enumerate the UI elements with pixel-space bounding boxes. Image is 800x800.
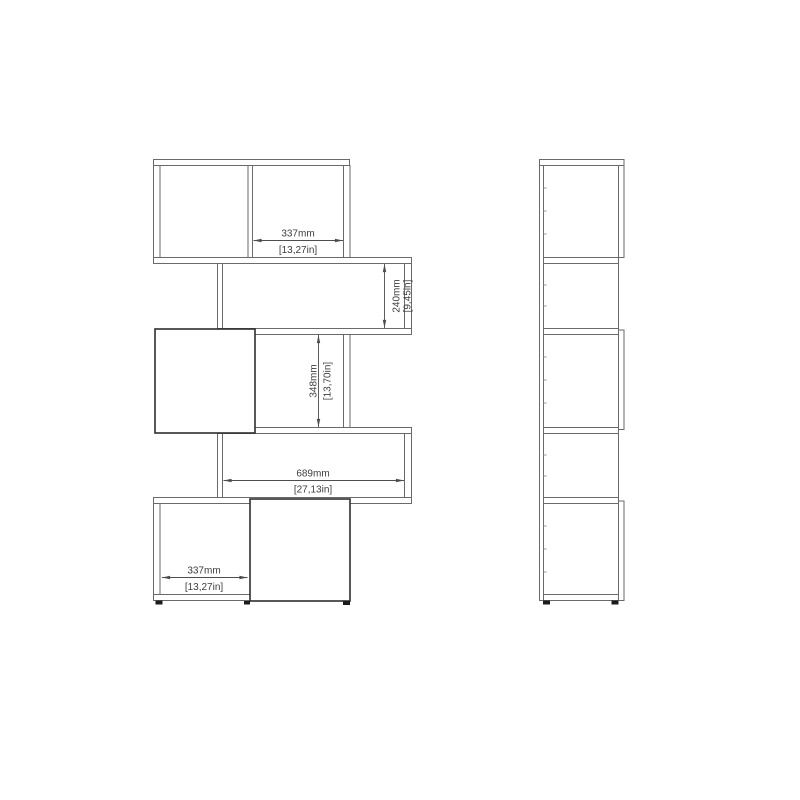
front-row4-right-wall [405,434,412,498]
dimension-label-inches: [9,45in] [403,279,414,312]
front-row4-pillar [218,434,223,498]
side-view [540,160,625,605]
side-top-panel [540,160,625,166]
front-row5-left-wall [154,504,161,595]
side-front-strip-row5 [619,501,625,601]
side-shelf-d [544,498,619,504]
front-row5-door-panel [250,499,350,601]
front-row3-door-panel [155,329,255,433]
front-shelf-a [154,258,412,264]
side-front-strip-row1 [619,166,625,258]
front-top-panel [154,160,350,166]
side-shelf-a [544,258,619,264]
front-foot-middle [244,601,250,605]
side-shelf-c [544,428,619,434]
front-row2-pillar [218,264,223,329]
dimension-shelf3-height: 348mm [13,70in] [309,335,334,427]
dimension-label-mm: 240mm [392,279,403,312]
dimension-label-inches: [27,13in] [294,485,333,496]
side-shelf-b [544,329,619,335]
dimension-label-inches: [13,70in] [323,362,334,401]
side-foot-back [543,601,550,605]
side-foot-front [612,601,619,605]
front-foot-right [343,601,350,605]
dimension-top-shelf-width: 337mm [13,27in] [254,229,344,257]
front-row1-left-wall [154,166,161,258]
dimension-shelf2-height: 240mm [9,45in] [385,264,414,328]
drawing-sheet: 337mm [13,27in] 240mm [9,45in] 348mm [13… [0,0,800,800]
dimension-label-inches: [13,27in] [279,245,318,256]
side-back-wall [540,166,544,601]
dimension-label-mm: 337mm [187,566,220,577]
front-row3-right-wall [344,335,351,428]
front-view: 337mm [13,27in] 240mm [9,45in] 348mm [13… [154,160,414,606]
dimension-bottom-shelf-width: 337mm [13,27in] [162,566,248,594]
front-row1-divider [248,166,253,258]
dimension-interior-width: 689mm [27,13in] [224,469,405,496]
technical-drawing: 337mm [13,27in] 240mm [9,45in] 348mm [13… [0,0,800,800]
dimension-label-mm: 337mm [281,229,314,240]
dimension-label-inches: [13,27in] [185,582,224,593]
front-foot-left [156,601,163,605]
side-bottom-panel [544,595,619,601]
side-front-strip-row3 [619,330,625,430]
front-row1-right-wall [344,166,351,258]
dimension-label-mm: 689mm [296,469,329,480]
dimension-label-mm: 348mm [309,364,320,397]
